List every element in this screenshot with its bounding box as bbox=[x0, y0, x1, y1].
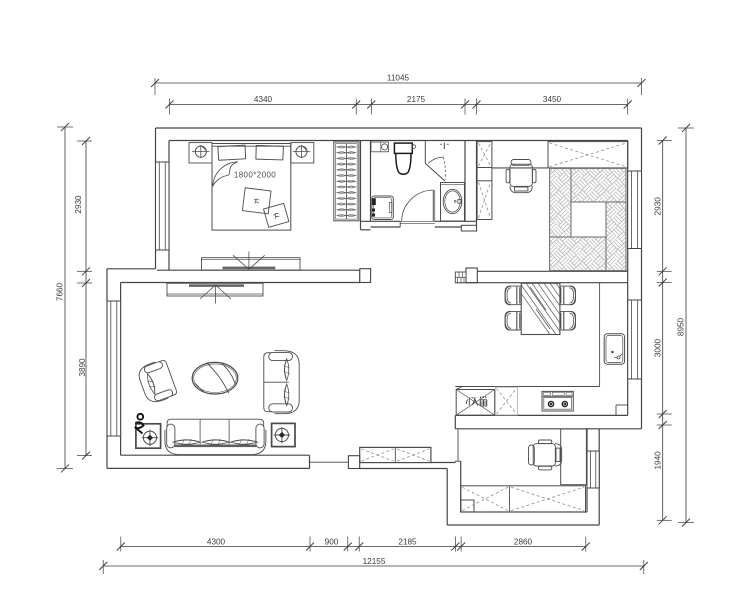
svg-text:2185: 2185 bbox=[398, 538, 417, 547]
svg-text:1800*2000: 1800*2000 bbox=[234, 170, 276, 179]
svg-text:1940: 1940 bbox=[653, 451, 662, 470]
svg-text:11045: 11045 bbox=[387, 73, 410, 82]
svg-text:3450: 3450 bbox=[543, 95, 562, 104]
svg-text:2860: 2860 bbox=[514, 538, 533, 547]
svg-text:2930: 2930 bbox=[74, 195, 83, 214]
svg-text:2930: 2930 bbox=[653, 197, 662, 216]
svg-text:3000: 3000 bbox=[653, 338, 662, 357]
svg-text:8950: 8950 bbox=[676, 317, 685, 336]
svg-text:12155: 12155 bbox=[363, 557, 386, 566]
svg-text:900: 900 bbox=[325, 538, 339, 547]
svg-text:4300: 4300 bbox=[207, 538, 226, 547]
svg-text:3890: 3890 bbox=[78, 358, 87, 377]
svg-text:4340: 4340 bbox=[254, 95, 273, 104]
svg-text:7660: 7660 bbox=[55, 282, 64, 301]
svg-text:2175: 2175 bbox=[407, 95, 426, 104]
